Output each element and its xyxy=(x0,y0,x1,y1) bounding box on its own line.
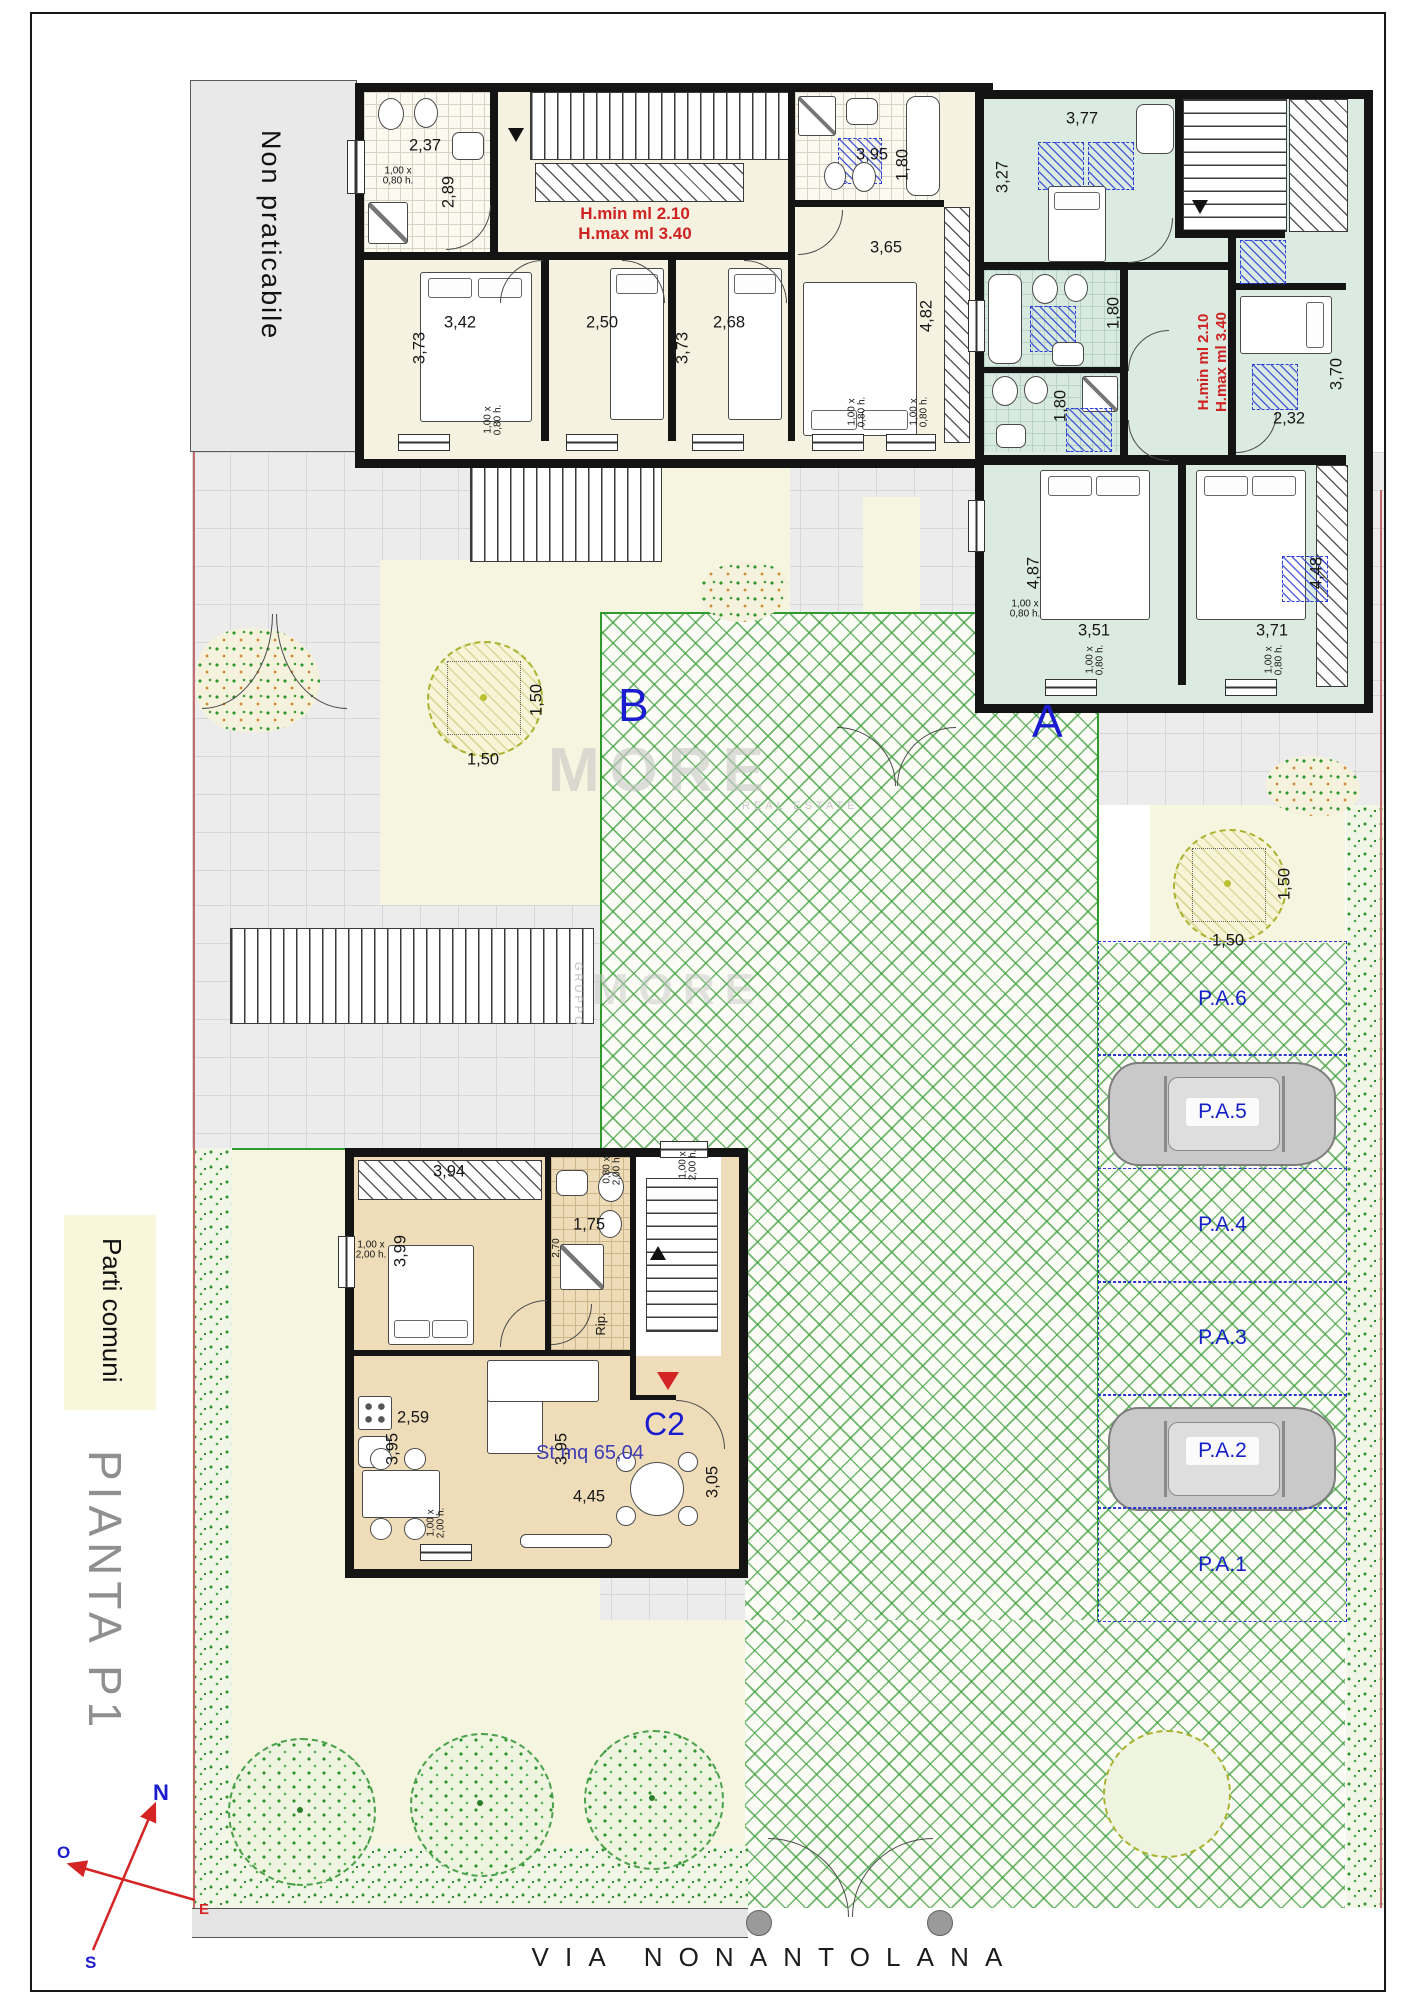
shrub-center xyxy=(477,1800,483,1806)
storage-label: Rip. xyxy=(594,1312,608,1335)
garden-path-top xyxy=(660,452,790,565)
stairs-arrow xyxy=(650,1246,666,1260)
bidet-icon xyxy=(1064,274,1088,302)
window-marker xyxy=(968,300,985,352)
pillow xyxy=(432,1320,468,1338)
shower-icon xyxy=(798,96,836,136)
parking-stall-label: P.A.6 xyxy=(1198,987,1247,1011)
sink-icon xyxy=(846,98,878,125)
brand-watermark-2: MORE xyxy=(592,965,764,1015)
parking-stall: P.A.3 xyxy=(1098,1281,1347,1396)
pillow xyxy=(1306,302,1324,348)
wardrobe-c2 xyxy=(358,1160,542,1200)
closet-b xyxy=(535,163,744,202)
stove-icon xyxy=(358,1396,392,1430)
bathtub-icon xyxy=(906,96,940,196)
brand-watermark-sub: REAL ESTATE xyxy=(742,800,859,812)
pillow xyxy=(428,278,472,298)
common-parts-label: Parti comuni xyxy=(96,1238,127,1383)
wall xyxy=(1175,99,1183,238)
closet-a-top xyxy=(1289,99,1348,232)
pergola-upper xyxy=(470,458,662,562)
shower-icon xyxy=(368,202,408,244)
shrub-center xyxy=(649,1795,655,1801)
toilet-icon xyxy=(1032,274,1058,304)
window-marker xyxy=(338,1236,355,1288)
window-marker xyxy=(968,500,985,552)
roof-window-hatch xyxy=(1240,240,1286,284)
bidet-icon xyxy=(598,1210,622,1238)
toilet-icon xyxy=(992,376,1018,406)
parking-stall-label: P.A.3 xyxy=(1198,1326,1247,1350)
compass-ns-axis xyxy=(93,1804,155,1950)
compass-east-label: E xyxy=(199,1901,209,1918)
window-marker xyxy=(566,434,618,451)
pergola-lower xyxy=(230,928,594,1024)
non-walkable-label: Non praticabile xyxy=(255,130,286,340)
window-marker xyxy=(398,434,450,451)
kitchen-table-icon xyxy=(362,1470,440,1518)
window-marker xyxy=(886,434,936,451)
wall xyxy=(1178,465,1186,685)
street-name: VIA NONANTOLANA xyxy=(300,1942,1250,1973)
unit-c2-surface-label: St mq 65,04 xyxy=(536,1442,644,1465)
sink-icon xyxy=(452,132,484,160)
pillow xyxy=(394,1320,430,1338)
wall xyxy=(788,92,795,441)
hedge-right xyxy=(1346,805,1384,1908)
window-marker xyxy=(812,434,864,451)
wardrobe-b xyxy=(944,207,970,443)
bidet-icon xyxy=(414,98,438,128)
height-note-a: H.min ml 2.10 H.max ml 3.40 xyxy=(1195,287,1231,437)
bathtub-icon xyxy=(988,274,1022,364)
chair-icon xyxy=(678,1452,698,1472)
compass-south-label: S xyxy=(85,1953,96,1972)
pillow xyxy=(1048,476,1092,496)
pillow xyxy=(1054,192,1100,210)
parking-stall-label: P.A.1 xyxy=(1198,1553,1247,1577)
toilet-icon xyxy=(378,98,404,130)
stairs-arrow xyxy=(1192,200,1208,214)
parking-stall-label: P.A.2 xyxy=(1186,1437,1259,1465)
roof-window-hatch xyxy=(1066,408,1112,452)
pillow xyxy=(811,410,857,430)
wall xyxy=(668,260,676,441)
floor-plan-page: MORE REAL ESTATE MORE GRUPPO Non pratica… xyxy=(0,0,1414,2000)
chair-icon xyxy=(404,1518,426,1540)
parking-stall: P.A.4 xyxy=(1098,1168,1347,1283)
pillow xyxy=(1096,476,1140,496)
roof-window-hatch xyxy=(1088,142,1134,190)
tree-icon xyxy=(1103,1730,1231,1858)
chair-icon xyxy=(370,1518,392,1540)
wall xyxy=(984,262,1228,270)
toilet-icon xyxy=(852,162,876,192)
lot-boundary-right xyxy=(1380,490,1382,1908)
tree-center xyxy=(480,694,487,701)
plan-title: PIANTA P1 xyxy=(78,1450,132,1733)
window-marker xyxy=(1225,679,1277,696)
brand-watermark-group: GRUPPO xyxy=(572,962,584,1028)
building-b-label: B xyxy=(618,678,649,732)
building-a-label: A xyxy=(1032,694,1063,748)
height-note-line2: H.max ml 3.40 xyxy=(540,224,730,244)
bidet-icon xyxy=(1024,376,1048,404)
sidewalk xyxy=(192,1908,748,1938)
shower-icon xyxy=(560,1244,604,1290)
wall xyxy=(1236,283,1346,290)
parking-stalls: P.A.6P.A.5P.A.4P.A.3P.A.2P.A.1 xyxy=(1098,943,1347,1622)
parking-stall: P.A.6 xyxy=(1098,941,1347,1056)
pillow xyxy=(862,410,908,430)
wall xyxy=(795,200,944,207)
wall xyxy=(1175,230,1285,238)
parking-stall-label: P.A.4 xyxy=(1198,1213,1247,1237)
chair-icon xyxy=(616,1506,636,1526)
roof-window-hatch xyxy=(1038,142,1084,190)
stairs-arrow xyxy=(508,128,524,142)
shower-icon xyxy=(1082,376,1118,412)
lot-boundary-left xyxy=(193,452,195,1908)
driveway-green xyxy=(745,1620,1345,1908)
unit-c2-label: C2 xyxy=(644,1406,685,1443)
parking-stall: P.A.5 xyxy=(1098,1054,1347,1169)
tree-center xyxy=(1224,880,1231,887)
desk-icon xyxy=(1136,104,1174,154)
window-marker xyxy=(692,434,744,451)
toilet-icon xyxy=(598,1172,624,1202)
chair-icon xyxy=(370,1448,392,1470)
roof-window-hatch xyxy=(1252,364,1298,410)
parking-stall-label: P.A.5 xyxy=(1186,1098,1259,1126)
bidet-icon xyxy=(824,162,846,190)
wall xyxy=(984,367,1120,373)
height-note-line1: H.min ml 2.10 xyxy=(540,204,730,224)
wall xyxy=(364,252,788,260)
shrub-center xyxy=(297,1807,303,1813)
compass-rose: N O E S xyxy=(55,1782,215,1972)
chair-icon xyxy=(404,1448,426,1470)
pillow xyxy=(1252,476,1296,496)
stairs-b xyxy=(530,92,790,160)
wall xyxy=(354,1350,630,1356)
wall xyxy=(490,92,498,252)
window-marker xyxy=(660,1141,708,1158)
height-note-line1: H.min ml 2.10 xyxy=(1195,287,1213,437)
sink-icon xyxy=(556,1170,588,1196)
entrance-marker xyxy=(657,1372,679,1390)
chair-icon xyxy=(678,1506,698,1526)
roof-window-hatch xyxy=(1282,556,1328,602)
wall xyxy=(630,1148,636,1400)
garden-patch-small xyxy=(863,497,920,612)
compass-ew-axis xyxy=(69,1864,195,1900)
sink-icon xyxy=(1052,342,1084,366)
wall xyxy=(1120,270,1128,462)
window-marker xyxy=(347,140,365,194)
sink-icon xyxy=(996,424,1026,448)
parking-stall: P.A.2 xyxy=(1098,1394,1347,1509)
sofa-icon xyxy=(487,1360,599,1402)
wall xyxy=(636,1395,676,1400)
round-table-icon xyxy=(630,1462,684,1516)
compass-west-label: O xyxy=(57,1843,70,1862)
pillow xyxy=(1204,476,1248,496)
height-note-line2: H.max ml 3.40 xyxy=(1213,287,1231,437)
parking-stall: P.A.1 xyxy=(1098,1507,1347,1622)
brand-watermark: MORE xyxy=(548,735,774,806)
compass-north-label: N xyxy=(153,1782,169,1805)
tv-bench-icon xyxy=(520,1534,612,1548)
height-note-b: H.min ml 2.10 H.max ml 3.40 xyxy=(540,204,730,245)
window-marker xyxy=(420,1544,472,1561)
